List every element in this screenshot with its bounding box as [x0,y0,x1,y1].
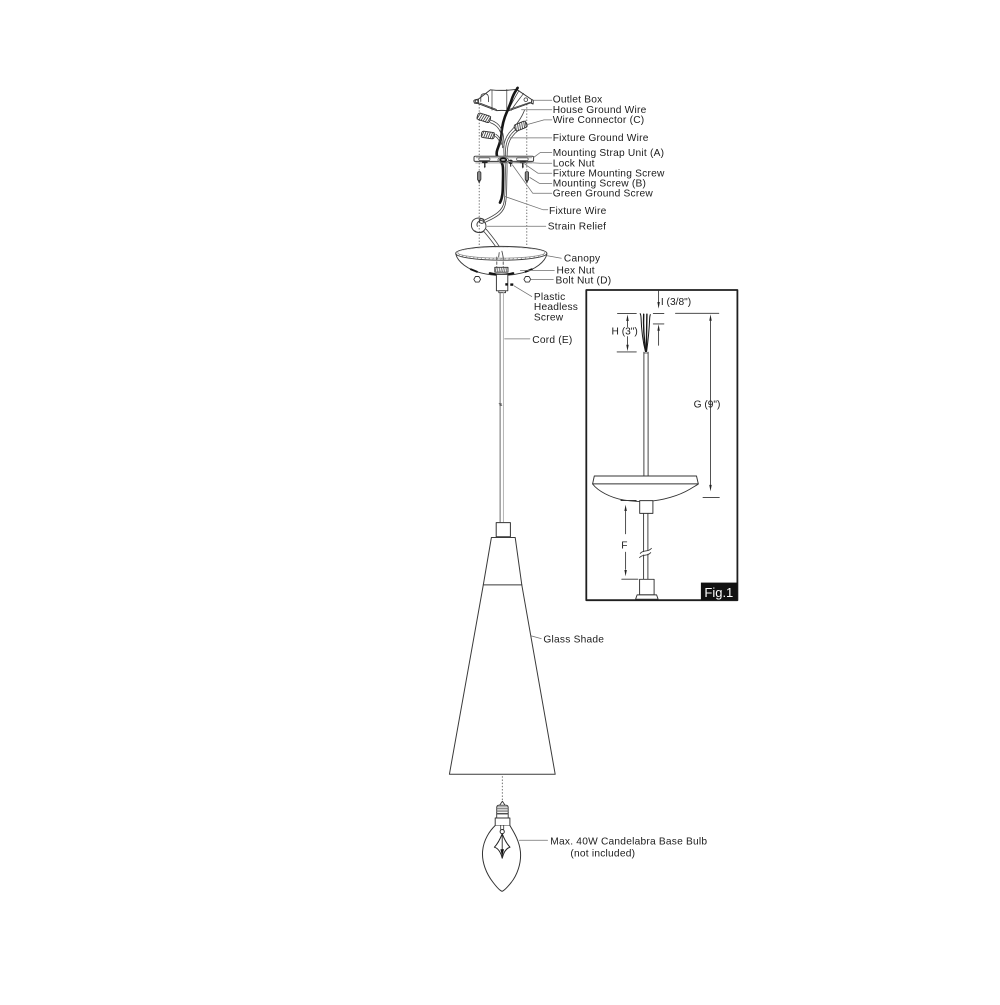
svg-text:Max. 40W Candelabra Base Bulb: Max. 40W Candelabra Base Bulb [550,837,707,848]
svg-text:(not included): (not included) [570,849,635,860]
svg-text:Strain Relief: Strain Relief [548,222,606,233]
svg-text:Fixture Ground Wire: Fixture Ground Wire [553,133,649,144]
svg-text:Green Ground Screw: Green Ground Screw [553,189,654,200]
svg-text:I (3/8"): I (3/8") [661,297,691,308]
svg-text:Glass Shade: Glass Shade [543,635,604,646]
svg-text:Outlet Box: Outlet Box [553,95,603,106]
svg-text:Canopy: Canopy [564,254,601,265]
svg-text:Bolt Nut (D): Bolt Nut (D) [556,276,612,287]
svg-text:Wire Connector (C): Wire Connector (C) [553,115,645,126]
svg-text:Screw: Screw [534,312,564,323]
svg-text:Fig.1: Fig.1 [704,585,733,600]
svg-text:H (3"): H (3") [612,327,638,338]
svg-text:F: F [621,540,627,551]
svg-text:Cord (E): Cord (E) [532,335,572,346]
svg-text:Mounting Strap Unit (A): Mounting Strap Unit (A) [553,148,665,159]
svg-text:Fixture Wire: Fixture Wire [549,206,607,217]
svg-text:G (9"): G (9") [694,400,721,411]
